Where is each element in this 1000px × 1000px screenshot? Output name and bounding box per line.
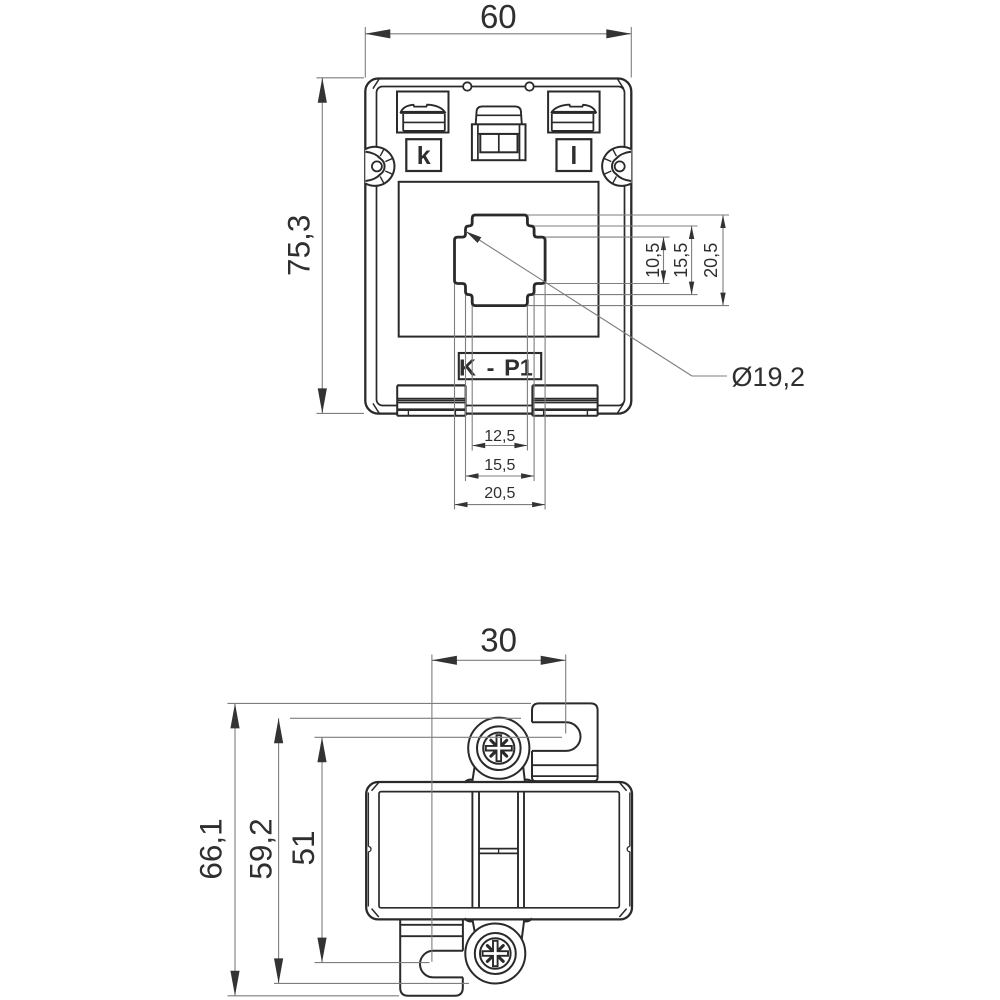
svg-text:20,5: 20,5 (701, 243, 721, 278)
svg-text:66,1: 66,1 (193, 818, 229, 879)
svg-text:l: l (570, 142, 577, 170)
svg-text:P1: P1 (504, 355, 533, 381)
svg-text:Ø19,2: Ø19,2 (732, 362, 806, 392)
svg-text:15,5: 15,5 (484, 457, 515, 474)
svg-text:-: - (487, 355, 495, 381)
svg-text:12,5: 12,5 (484, 428, 515, 445)
svg-text:30: 30 (480, 622, 517, 659)
svg-text:10,5: 10,5 (643, 243, 663, 278)
svg-text:60: 60 (480, 0, 517, 35)
svg-text:51: 51 (285, 830, 321, 865)
svg-text:k: k (417, 142, 431, 170)
svg-text:20,5: 20,5 (484, 485, 515, 502)
svg-text:75,3: 75,3 (281, 215, 317, 276)
svg-text:K: K (459, 355, 476, 381)
svg-text:15,5: 15,5 (671, 243, 691, 278)
svg-text:59,2: 59,2 (243, 818, 279, 879)
